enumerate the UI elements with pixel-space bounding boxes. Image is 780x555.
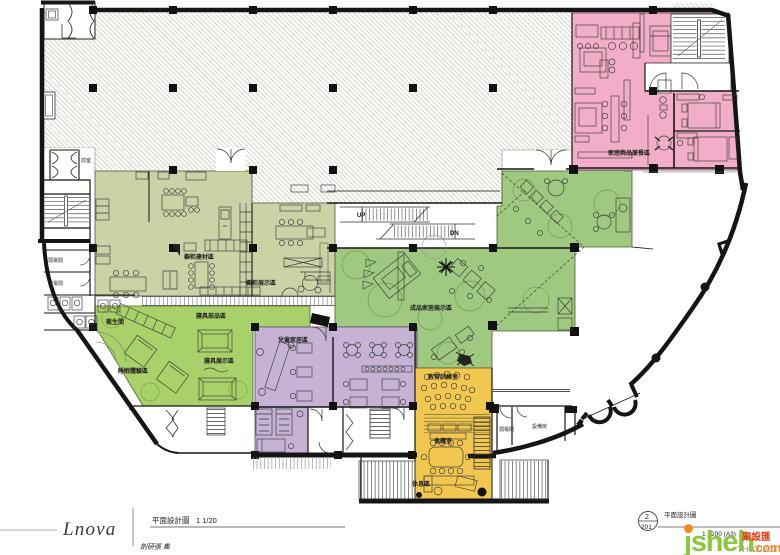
- svg-text:1 1/20: 1 1/20: [196, 516, 217, 525]
- svg-text:UP: UP: [357, 213, 365, 219]
- svg-text:成品家居展示區: 成品家居展示區: [410, 304, 452, 312]
- svg-text:設備房: 設備房: [532, 423, 547, 430]
- svg-text:DN: DN: [450, 231, 459, 237]
- svg-text:衛生間: 衛生間: [105, 318, 124, 326]
- svg-text:弱電間: 弱電間: [499, 427, 514, 433]
- svg-text:休息區: 休息區: [411, 480, 430, 488]
- svg-text:橱柜展示區: 橱柜展示區: [246, 279, 276, 287]
- svg-text:弱電間: 弱電間: [48, 258, 63, 264]
- svg-text:201: 201: [641, 524, 652, 531]
- svg-text:Lnova: Lnova: [62, 519, 117, 540]
- svg-text:.com: .com: [752, 541, 780, 555]
- svg-text:睡眠體驗區: 睡眠體驗區: [118, 367, 148, 375]
- svg-text:強電間: 強電間: [48, 280, 63, 287]
- svg-text:2: 2: [645, 514, 649, 521]
- svg-text:家居飾品兼餐區: 家居飾品兼餐區: [608, 149, 650, 157]
- svg-text:兒童家居區: 兒童家居區: [277, 336, 308, 344]
- svg-text:寢具展示區: 寢具展示區: [204, 357, 234, 365]
- svg-text:劍研張 集: 劍研張 集: [140, 543, 171, 551]
- svg-text:橱柜建材區: 橱柜建材區: [184, 253, 214, 261]
- svg-text:平面設計圖: 平面設計圖: [664, 510, 697, 519]
- svg-text:前室: 前室: [81, 157, 91, 164]
- svg-text:教育訓練室: 教育訓練室: [427, 373, 458, 381]
- svg-text:寢具部品區: 寢具部品區: [196, 312, 226, 320]
- svg-text:會議室: 會議室: [434, 437, 452, 445]
- svg-text:聚設匯: 聚設匯: [741, 531, 771, 543]
- svg-text:平面設計圖: 平面設計圖: [152, 515, 190, 525]
